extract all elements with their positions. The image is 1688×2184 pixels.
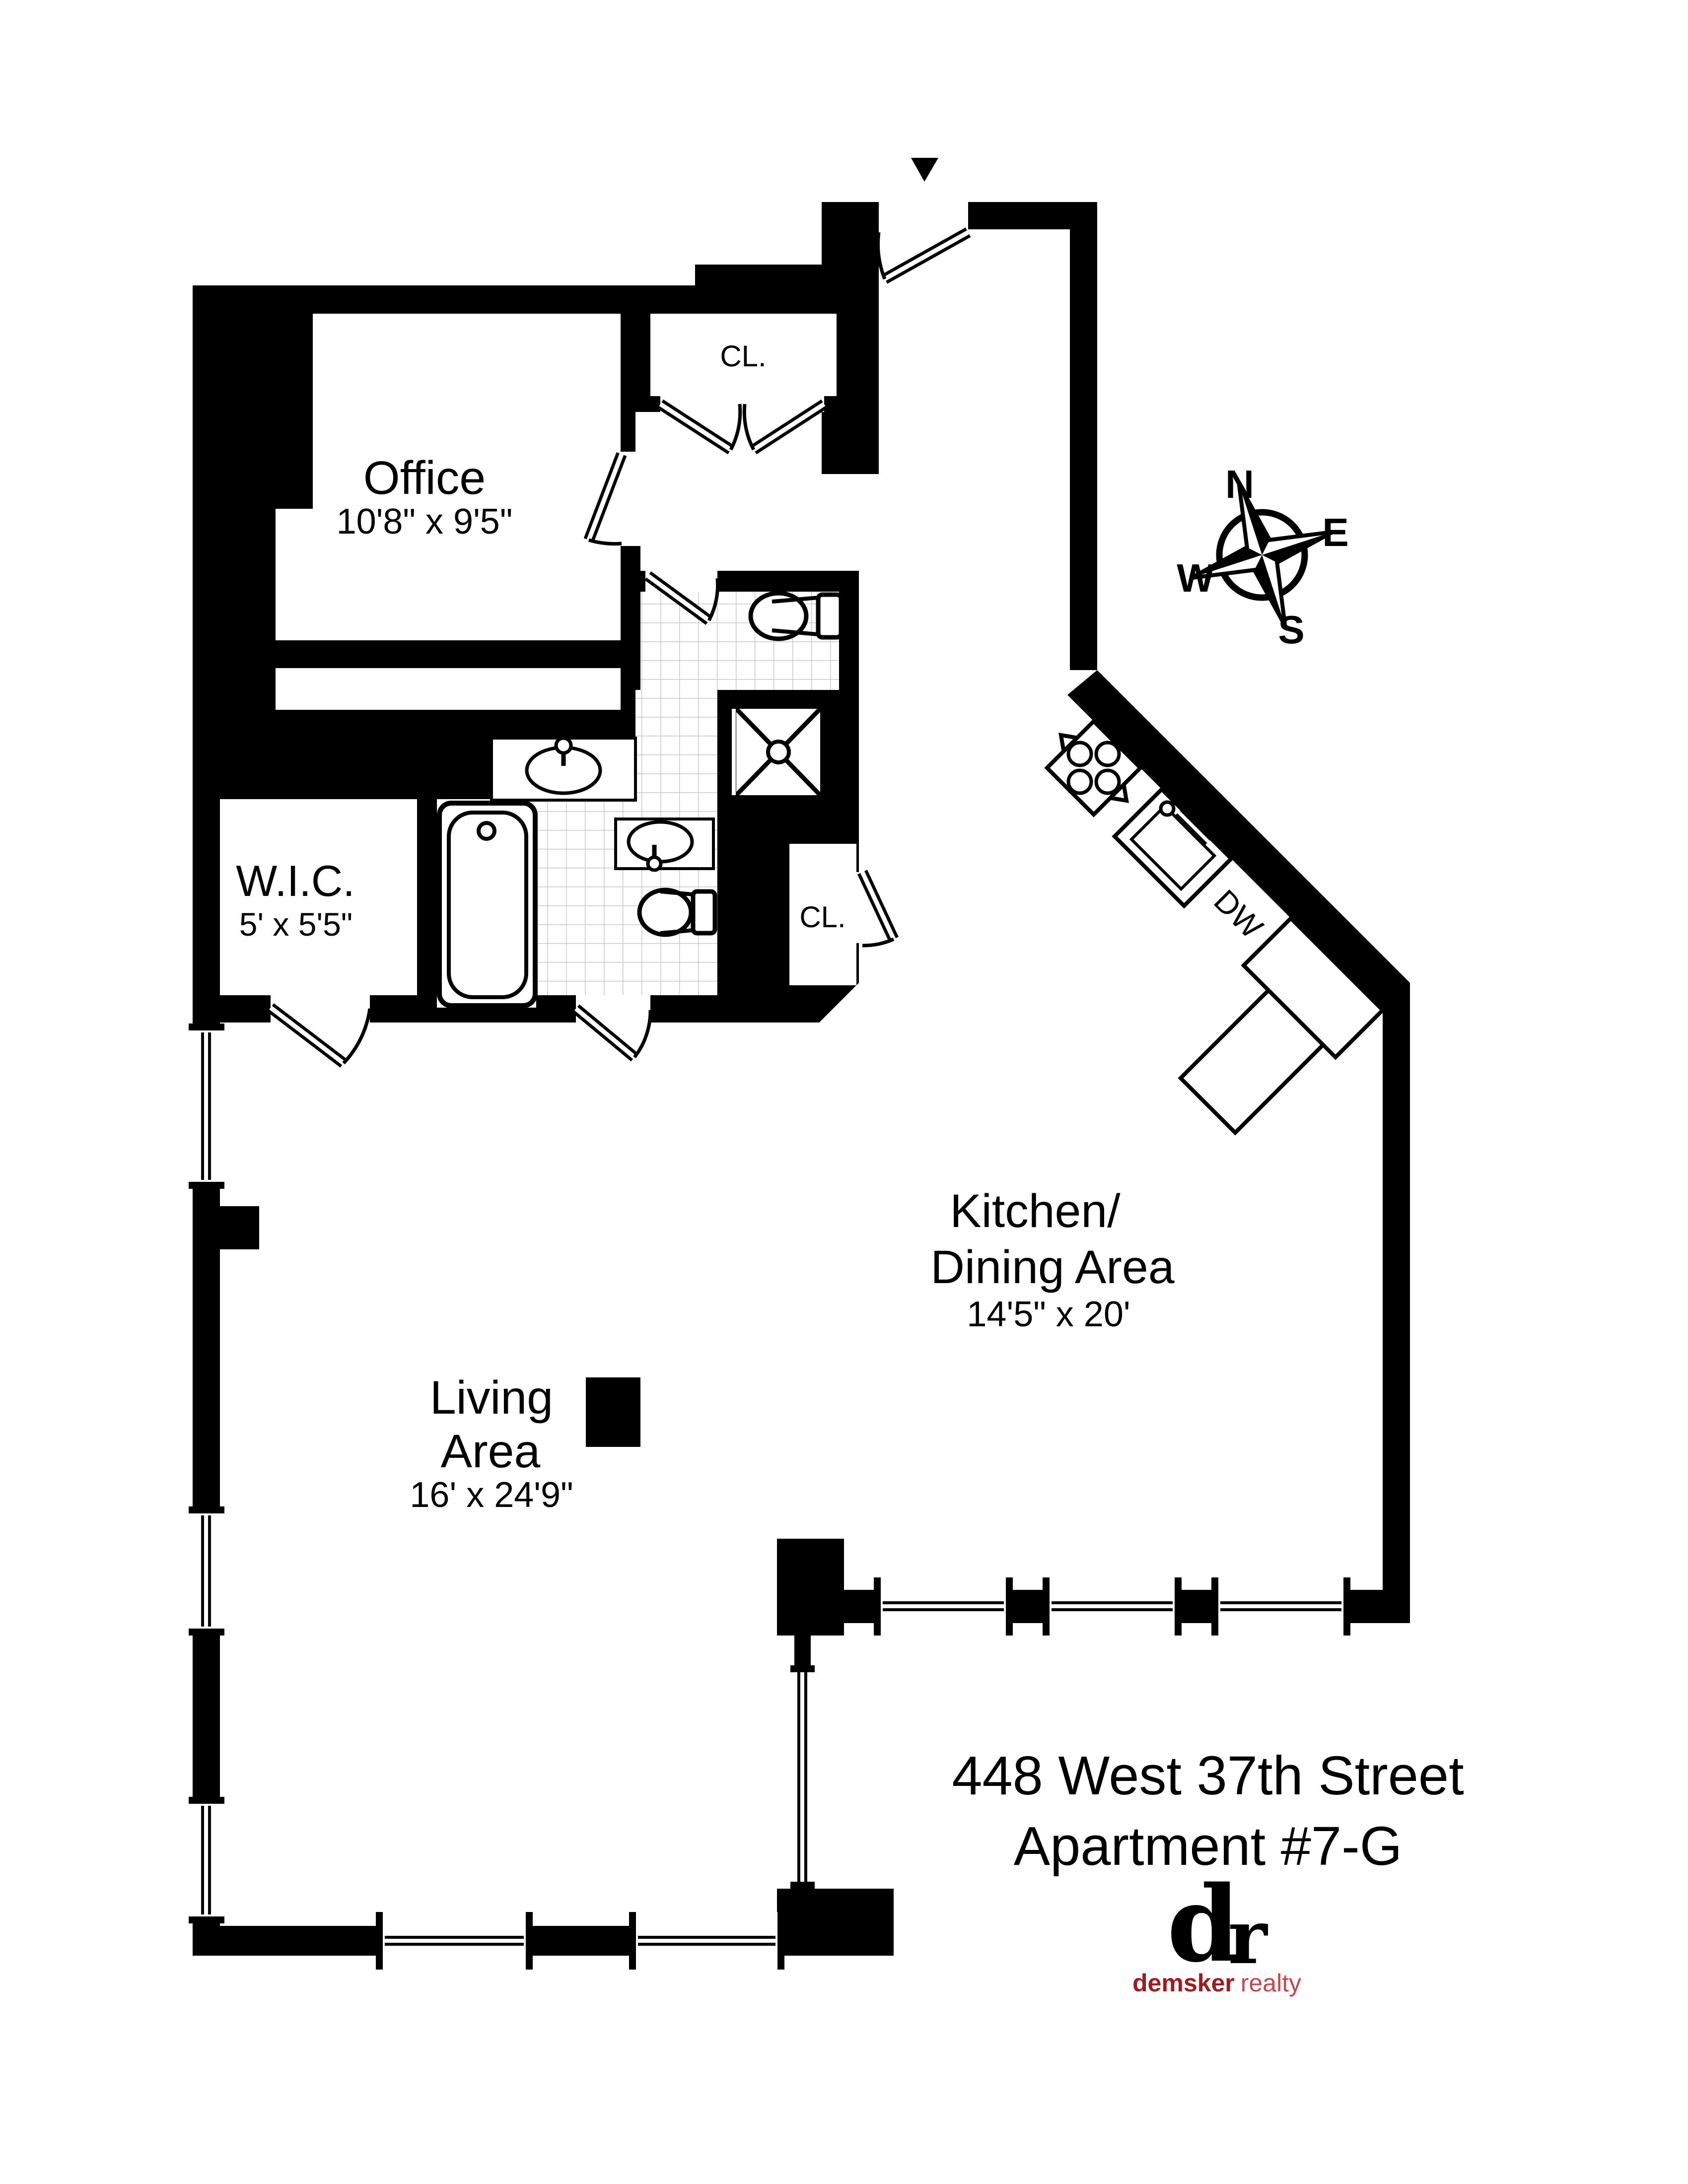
kitchen-label-line1: Kitchen/ (950, 1185, 1121, 1237)
window-left-2 (189, 1506, 224, 1636)
window-kitchen-1 (874, 1577, 1013, 1636)
address-line1: 448 West 37th Street (952, 1745, 1464, 1806)
hall-closet-label: CL. (799, 900, 845, 934)
entrance-arrow-icon (911, 158, 938, 182)
bathtub-icon (439, 803, 535, 1006)
living-label-line1: Living (430, 1371, 553, 1424)
window-kitchen-3 (1211, 1577, 1350, 1636)
entrance-door (878, 232, 968, 279)
wic-door (271, 1008, 370, 1063)
entry-closet-label: CL. (720, 340, 766, 373)
kitchen-label-line2: Dining Area (930, 1241, 1174, 1294)
compass-e: E (1322, 510, 1348, 554)
compass-w: W (1177, 556, 1214, 600)
logo-monogram-r: r (1228, 1894, 1268, 1981)
wic-label: W.I.C. (236, 856, 355, 905)
footer: 448 West 37th Street Apartment #7-G d r … (952, 1745, 1464, 1997)
window-jut (790, 1665, 815, 1889)
hall-closet-door (862, 872, 894, 946)
logo-brand-bold: demsker (1132, 1969, 1235, 1997)
toilet-icon (751, 593, 841, 639)
demsker-realty-logo: d r demskerrealty (1132, 1863, 1301, 1997)
bathroom-tile-floor (640, 592, 839, 690)
compass-rose: N E S W (1168, 461, 1356, 652)
compass-n: N (1225, 462, 1254, 506)
logo-wordmark: demskerrealty (1132, 1969, 1301, 1997)
office-dims: 10'8" x 9'5" (337, 502, 513, 542)
sink-icon-2 (616, 819, 713, 870)
window-south-2 (629, 1912, 784, 1970)
logo-brand-light: realty (1241, 1969, 1301, 1997)
column (586, 1377, 640, 1447)
wic-dims: 5' x 5'5" (239, 906, 352, 943)
floorplan-page: N E S W Office 10'8" x 9'5" CL. CL. W.I.… (0, 0, 1688, 2184)
living-label-line2: Area (441, 1425, 541, 1478)
bathroom-tile-floor (635, 690, 717, 814)
floorplan-drawing: N E S W Office 10'8" x 9'5" CL. CL. W.I.… (0, 0, 1688, 2184)
window-left-1 (189, 1024, 224, 1189)
dishwasher-label: DW (1207, 883, 1270, 946)
kitchen-dims: 14'5" x 20' (967, 1295, 1130, 1334)
window-kitchen-2 (1043, 1577, 1182, 1636)
window-left-3 (189, 1797, 224, 1923)
sink-icon (492, 738, 635, 800)
living-dims: 16' x 24'9" (410, 1475, 573, 1515)
compass-s: S (1278, 608, 1304, 652)
toilet-icon-2 (639, 890, 715, 935)
office-label: Office (363, 452, 486, 504)
window-south-1 (376, 1912, 533, 1970)
